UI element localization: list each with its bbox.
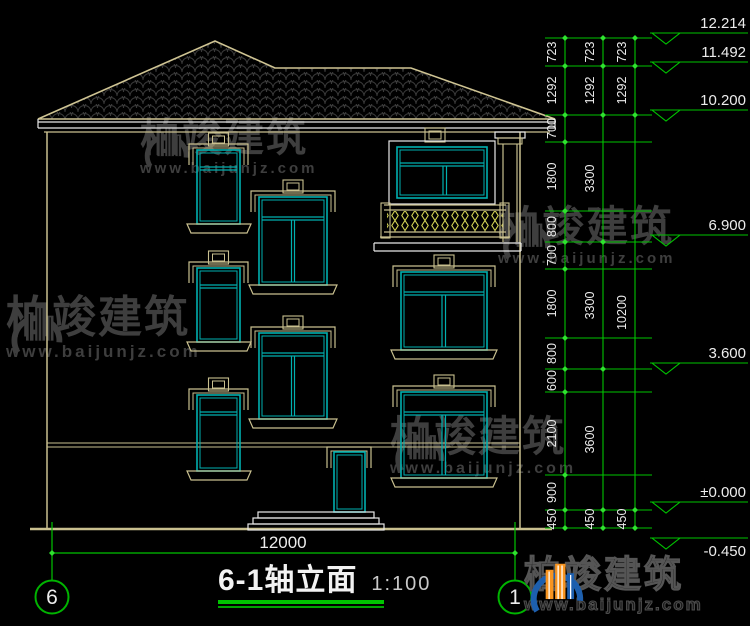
level-markers bbox=[650, 33, 748, 549]
window-sill bbox=[187, 471, 251, 480]
watermark: 柏竣建筑 www.baijunjz.com bbox=[390, 416, 576, 477]
window-sill bbox=[249, 419, 337, 428]
drawing-title-block: 6-1轴立面 1:100 bbox=[218, 566, 431, 608]
watermark: 柏竣建筑 www.baijunjz.com bbox=[140, 118, 317, 176]
brand-block: 柏竣建筑 www.baijunjz.com bbox=[524, 556, 703, 615]
dim-label: 3300 bbox=[583, 165, 597, 193]
window-sill bbox=[187, 224, 251, 233]
level-label: 12.214 bbox=[700, 15, 746, 32]
roof-outline bbox=[38, 41, 555, 119]
dim-label: 3300 bbox=[583, 292, 597, 320]
balcony-railing bbox=[387, 211, 503, 232]
window-sill bbox=[249, 285, 337, 294]
brand-logo-icon bbox=[6, 296, 66, 362]
level-label: 10.200 bbox=[700, 92, 746, 109]
brand-logo-icon bbox=[498, 206, 554, 266]
dim-label: 600 bbox=[545, 370, 559, 391]
dim-label: 450 bbox=[615, 509, 629, 530]
dim-label: 723 bbox=[615, 42, 629, 63]
entrance-door bbox=[327, 447, 371, 512]
title-underline bbox=[218, 606, 384, 608]
entrance-steps bbox=[248, 512, 384, 530]
dim-label: 723 bbox=[545, 42, 559, 63]
cad-elevation-screenshot: 柏竣建筑 www.baijunjz.com 柏竣建筑 www.baijunjz.… bbox=[0, 0, 750, 626]
level-label: ±0.000 bbox=[700, 484, 746, 501]
brand-logo-icon bbox=[140, 118, 192, 174]
dim-label: 1292 bbox=[615, 77, 629, 105]
brand-logo-icon bbox=[390, 416, 448, 480]
dim-label: 450 bbox=[545, 509, 559, 530]
dim-label: 1800 bbox=[545, 290, 559, 318]
window-mid-2 bbox=[249, 316, 337, 428]
dim-label: 1292 bbox=[545, 77, 559, 105]
window-sill bbox=[391, 350, 497, 359]
window-right-2 bbox=[391, 255, 497, 359]
level-label: 11.492 bbox=[701, 44, 746, 61]
title-underline bbox=[218, 600, 384, 604]
dim-label: 12000 bbox=[259, 533, 306, 552]
axis-number-left: 6 bbox=[46, 586, 58, 609]
drawing-title: 6-1轴立面 bbox=[218, 566, 357, 596]
dim-label: 700 bbox=[545, 118, 559, 139]
watermark: 柏竣建筑 www.baijunjz.com bbox=[498, 206, 675, 266]
brand-logo-icon bbox=[524, 556, 588, 618]
axis-number-right: 1 bbox=[509, 586, 521, 609]
dim-label: 723 bbox=[583, 42, 597, 63]
dim-label: 3600 bbox=[583, 426, 597, 454]
dim-label: 10200 bbox=[615, 295, 629, 330]
window-mid-1 bbox=[249, 180, 337, 294]
dim-label: 900 bbox=[545, 482, 559, 503]
watermark: 柏竣建筑 www.baijunjz.com bbox=[6, 296, 201, 360]
window-left-3 bbox=[187, 378, 251, 480]
level-label: 3.600 bbox=[708, 345, 746, 362]
dim-label: 800 bbox=[545, 343, 559, 364]
level-label: -0.450 bbox=[703, 543, 746, 560]
dim-label: 1800 bbox=[545, 163, 559, 191]
level-label: 6.900 bbox=[708, 217, 746, 234]
dim-label: 1292 bbox=[583, 77, 597, 105]
dim-label: 450 bbox=[583, 509, 597, 530]
drawing-scale: 1:100 bbox=[371, 573, 431, 596]
